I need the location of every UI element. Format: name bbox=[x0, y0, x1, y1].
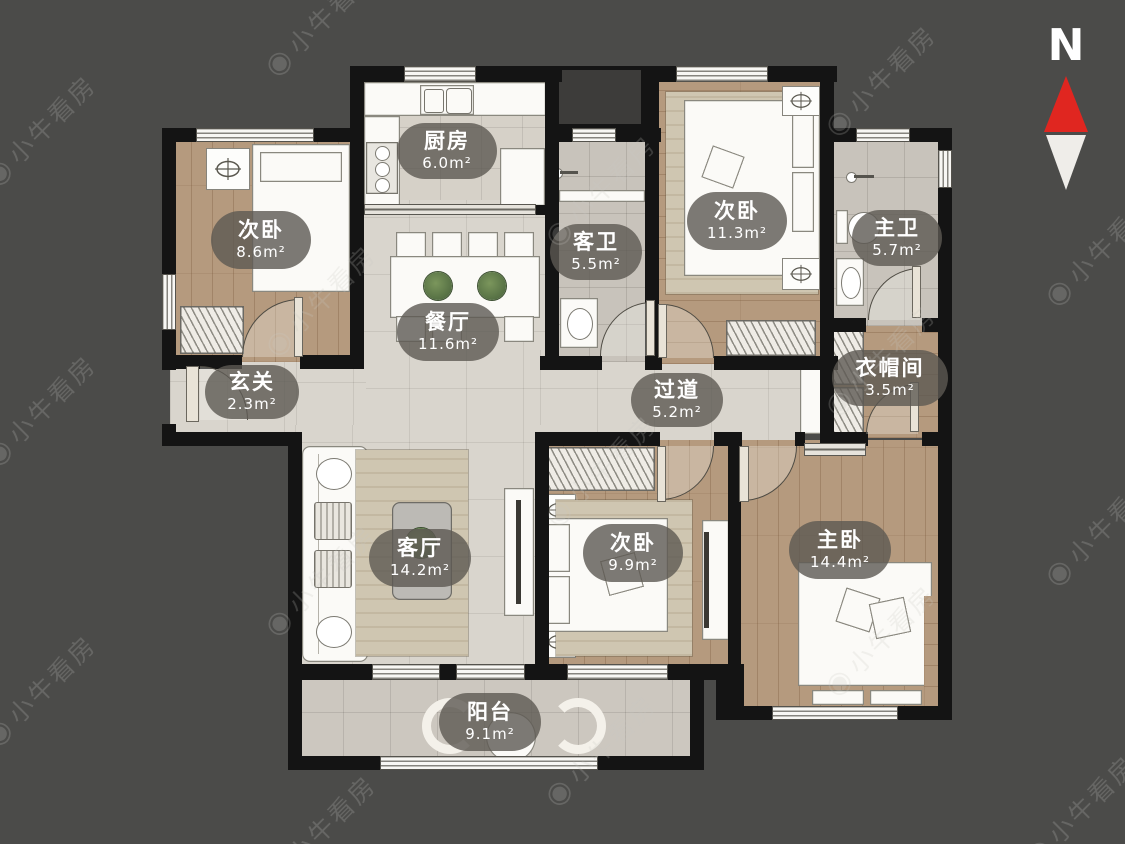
faucet-icon bbox=[846, 166, 876, 186]
side-cabinet bbox=[924, 596, 938, 708]
room-name: 主卧 bbox=[817, 529, 863, 551]
room-label-hallway: 过道 5.2m² bbox=[631, 373, 723, 427]
window bbox=[567, 664, 668, 680]
room-area: 14.2m² bbox=[390, 561, 450, 579]
wall-segment bbox=[820, 66, 834, 446]
watermark-logo-icon: ◉ bbox=[1037, 551, 1079, 593]
wardrobe bbox=[545, 447, 655, 491]
watermark: ◉小牛看房 bbox=[0, 626, 104, 754]
fridge bbox=[500, 148, 545, 206]
north-compass: N bbox=[1034, 24, 1098, 192]
door-leaf bbox=[657, 446, 666, 502]
wall-segment bbox=[162, 432, 302, 446]
hall-cabinet bbox=[800, 368, 822, 434]
room-area: 9.9m² bbox=[608, 556, 657, 574]
wall-segment bbox=[350, 142, 364, 369]
sink-basin-small bbox=[424, 89, 444, 113]
watermark: ◉小牛看房 bbox=[1036, 466, 1125, 594]
room-label-entry: 玄关 2.3m² bbox=[205, 365, 299, 419]
room-area: 3.5m² bbox=[865, 381, 914, 399]
door-leaf bbox=[739, 446, 749, 502]
basin-oval bbox=[567, 308, 593, 340]
bed-pillow bbox=[792, 108, 814, 168]
room-label-master-bathroom: 主卫 5.7m² bbox=[852, 210, 942, 266]
room-name: 过道 bbox=[654, 379, 700, 401]
window bbox=[404, 66, 476, 82]
room-area: 2.3m² bbox=[227, 395, 276, 413]
room-area: 9.1m² bbox=[465, 725, 514, 743]
window bbox=[856, 128, 910, 142]
room-name: 次卧 bbox=[238, 219, 284, 241]
door-leaf bbox=[658, 304, 667, 358]
wall-segment bbox=[535, 432, 660, 446]
room-label-balcony: 阳台 9.1m² bbox=[439, 693, 541, 751]
washbasin bbox=[560, 298, 598, 348]
watermark-text: 小牛看房 bbox=[839, 16, 944, 121]
room-area: 8.6m² bbox=[236, 243, 285, 261]
ceiling-light-icon bbox=[782, 86, 820, 116]
room-label-guest-bathroom: 客卫 5.5m² bbox=[550, 224, 642, 280]
faucet-bar bbox=[560, 171, 578, 174]
dining-chair bbox=[396, 232, 426, 258]
window bbox=[676, 66, 768, 82]
dining-chair bbox=[504, 316, 534, 342]
ceiling-light-icon bbox=[782, 258, 820, 290]
watermark: ◉小牛看房 bbox=[1036, 186, 1125, 314]
watermark-text: 小牛看房 bbox=[279, 766, 384, 844]
compass-needle-south bbox=[1046, 135, 1086, 190]
sofa-pillow bbox=[316, 616, 352, 648]
wall-segment bbox=[288, 440, 302, 770]
compass-needle-icon bbox=[1042, 74, 1090, 192]
burner-icon bbox=[375, 178, 390, 193]
room-label-bedroom-top-left: 次卧 8.6m² bbox=[211, 211, 311, 269]
wall-segment bbox=[350, 66, 364, 142]
watermark-logo-icon: ◉ bbox=[1037, 271, 1079, 313]
burner-icon bbox=[375, 146, 390, 161]
room-label-closet: 衣帽间 3.5m² bbox=[832, 350, 948, 406]
ceiling-light-icon bbox=[206, 148, 250, 190]
master-sliding-door bbox=[804, 443, 866, 456]
bed-pillow bbox=[546, 524, 570, 572]
sofa-cushion bbox=[314, 502, 352, 540]
ceiling-light-glyph bbox=[787, 91, 815, 111]
bed-cushion bbox=[870, 690, 922, 705]
sink-basin-large bbox=[446, 88, 472, 114]
watermark-text: 小牛看房 bbox=[0, 346, 104, 451]
window bbox=[372, 664, 440, 680]
wall-segment bbox=[535, 205, 546, 215]
wall-segment bbox=[714, 432, 742, 446]
watermark-text: 小牛看房 bbox=[0, 626, 104, 731]
watermark-logo-icon: ◉ bbox=[537, 771, 579, 813]
watermark: ◉小牛看房 bbox=[0, 346, 104, 474]
window bbox=[196, 128, 314, 142]
room-label-bedroom-top-right: 次卧 11.3m² bbox=[687, 192, 787, 250]
entry-door-leaf bbox=[186, 366, 199, 422]
watermark-text: 小牛看房 bbox=[1059, 466, 1125, 571]
door-leaf bbox=[646, 300, 655, 356]
room-area: 5.7m² bbox=[872, 241, 921, 259]
window bbox=[772, 706, 898, 720]
room-area: 6.0m² bbox=[422, 154, 471, 172]
room-area: 5.2m² bbox=[652, 403, 701, 421]
wall-segment bbox=[938, 128, 952, 150]
bed-pillow bbox=[260, 152, 342, 182]
wall-segment bbox=[545, 80, 559, 370]
room-label-dining: 餐厅 11.6m² bbox=[397, 303, 499, 361]
room-label-bedroom-bottom: 次卧 9.9m² bbox=[583, 524, 683, 582]
watermark: ◉小牛看房 bbox=[1016, 746, 1125, 844]
wall-segment bbox=[716, 664, 744, 720]
plant-icon bbox=[424, 272, 452, 300]
wall-segment bbox=[162, 330, 176, 370]
deco-pillow bbox=[869, 597, 912, 640]
room-name: 次卧 bbox=[714, 200, 760, 222]
wardrobe bbox=[180, 306, 244, 354]
room-name: 客厅 bbox=[397, 537, 443, 559]
dining-chair bbox=[468, 232, 498, 258]
wall-segment bbox=[440, 664, 456, 680]
room-area: 14.4m² bbox=[810, 553, 870, 571]
room-name: 主卫 bbox=[874, 217, 920, 239]
wardrobe bbox=[726, 320, 816, 356]
wall-segment bbox=[690, 664, 704, 770]
plant-icon bbox=[478, 272, 506, 300]
watermark-logo-icon: ◉ bbox=[1017, 831, 1059, 844]
washbasin bbox=[836, 258, 864, 306]
dining-chair bbox=[504, 232, 534, 258]
dining-chair bbox=[432, 232, 462, 258]
room-name: 阳台 bbox=[467, 701, 513, 723]
ceiling-light-glyph bbox=[212, 157, 244, 181]
room-area: 5.5m² bbox=[571, 255, 620, 273]
room-name: 次卧 bbox=[610, 532, 656, 554]
ceiling-light-glyph bbox=[787, 264, 815, 284]
wall-segment bbox=[162, 424, 176, 446]
wall-segment bbox=[535, 440, 549, 680]
room-label-master-bedroom: 主卧 14.4m² bbox=[789, 521, 891, 579]
wall-segment bbox=[162, 128, 176, 274]
door-leaf bbox=[294, 297, 303, 357]
balcony-chair bbox=[550, 698, 606, 754]
watermark-text: 小牛看房 bbox=[1039, 746, 1125, 844]
tv bbox=[704, 532, 709, 628]
kitchen-sink bbox=[420, 85, 474, 115]
watermark: ◉小牛看房 bbox=[256, 766, 384, 844]
watermark-logo-icon: ◉ bbox=[257, 41, 299, 83]
bed-pillow bbox=[546, 576, 570, 624]
room-label-kitchen: 厨房 6.0m² bbox=[397, 123, 497, 179]
window bbox=[162, 274, 176, 330]
tv bbox=[516, 500, 521, 604]
faucet-bar bbox=[854, 175, 874, 178]
watermark: ◉小牛看房 bbox=[0, 66, 104, 194]
watermark-text: 小牛看房 bbox=[279, 0, 384, 61]
room-label-living: 客厅 14.2m² bbox=[369, 529, 471, 587]
toilet-tank bbox=[836, 210, 848, 244]
sofa-pillow bbox=[316, 458, 352, 490]
floor-plan: 次卧 8.6m² 厨房 6.0m² 客卫 5.5m² 次卧 11.3m² 主卫 … bbox=[0, 0, 1125, 844]
room-name: 客卫 bbox=[573, 231, 619, 253]
basin-oval bbox=[841, 267, 861, 299]
bed-pillow bbox=[792, 172, 814, 232]
window bbox=[456, 664, 525, 680]
watermark-text: 小牛看房 bbox=[0, 66, 104, 171]
room-name: 厨房 bbox=[424, 130, 470, 152]
sofa-cushion bbox=[314, 550, 352, 588]
watermark-logo-icon: ◉ bbox=[0, 431, 19, 473]
duct-shaft bbox=[553, 66, 645, 128]
wall-segment bbox=[598, 756, 704, 770]
shower-screen bbox=[559, 190, 645, 202]
north-label: N bbox=[1048, 24, 1085, 68]
wall-segment bbox=[938, 188, 952, 720]
watermark-logo-icon: ◉ bbox=[0, 711, 19, 753]
bed-cushion bbox=[812, 690, 864, 705]
burner-icon bbox=[375, 162, 390, 177]
room-area: 11.3m² bbox=[707, 224, 767, 242]
door-leaf bbox=[912, 266, 921, 318]
room-area: 11.6m² bbox=[418, 335, 478, 353]
window bbox=[572, 128, 616, 142]
room-name: 衣帽间 bbox=[856, 357, 925, 379]
room-name: 餐厅 bbox=[425, 311, 471, 333]
watermark-text: 小牛看房 bbox=[1059, 186, 1125, 291]
kitchen-sliding-door bbox=[364, 204, 536, 215]
window bbox=[938, 150, 952, 188]
compass-needle-north bbox=[1044, 76, 1088, 132]
watermark-logo-icon: ◉ bbox=[0, 151, 19, 193]
window bbox=[380, 756, 598, 770]
room-name: 玄关 bbox=[229, 371, 275, 393]
stove bbox=[366, 142, 398, 194]
